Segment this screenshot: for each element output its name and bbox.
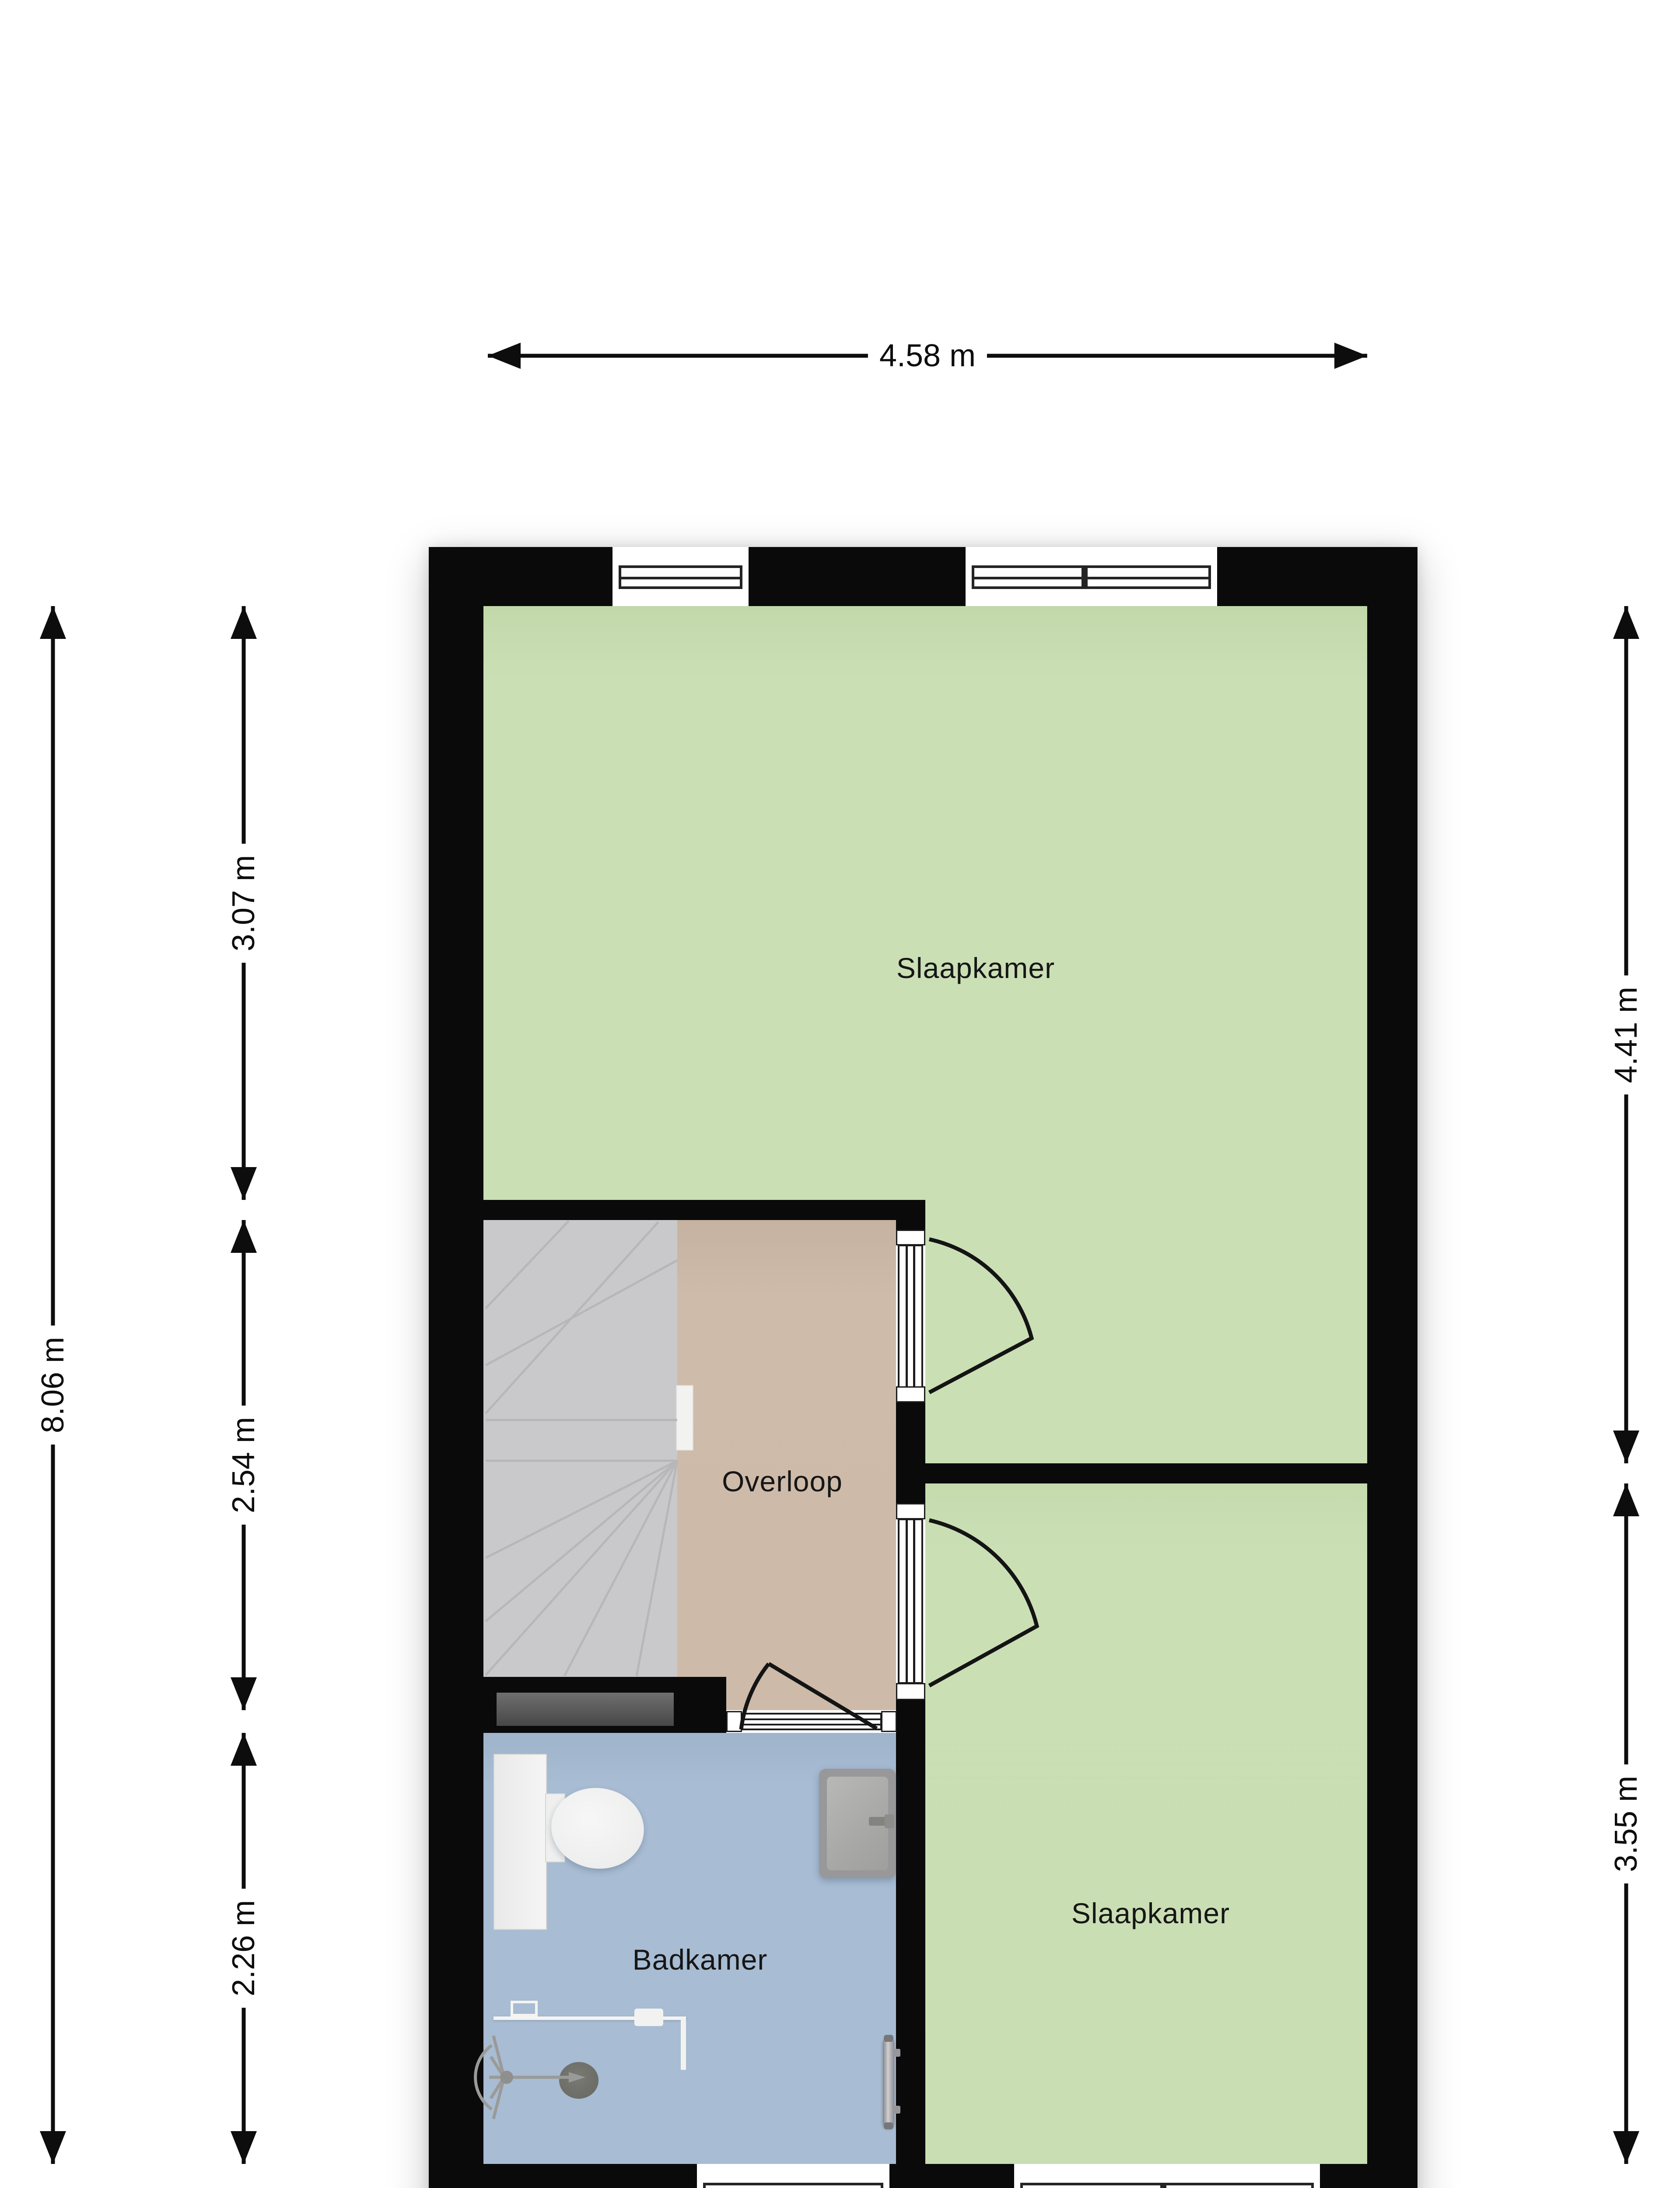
room-bedroom-bottom [925,1483,1367,2164]
door-leaf-bedroom-top [898,1245,923,1388]
window-frame [972,565,1211,589]
window-frame [619,565,742,589]
room-label-landing: Overloop [722,1465,843,1498]
dimension-left-total: 8.06 m [32,1325,73,1445]
radiator-cap [884,2122,893,2129]
room-bedroom-top [483,606,1367,1200]
wall-bedrooms-divider [925,1463,1367,1483]
door-jamb [881,1711,897,1732]
radiator-bracket [893,2049,900,2057]
dimension-left-2: 2.54 m [223,1406,264,1525]
door-jamb [726,1711,742,1732]
door-jamb [896,1386,925,1403]
dimension-right-2: 3.55 m [1606,1764,1647,1883]
room-label-bedroom-top: Slaapkamer [896,951,1055,985]
door-jamb [896,1683,925,1700]
shower-rail-post [681,2018,686,2070]
radiator-bracket [893,2106,900,2114]
wall-landing-north [483,1200,925,1220]
door-leaf-bathroom [741,1713,882,1730]
door-jamb [896,1503,925,1519]
dimension-right-1: 4.41 m [1606,975,1647,1094]
dimension-left-3: 2.26 m [223,1889,264,2008]
room-label-bathroom: Badkamer [633,1943,768,1976]
bathtub-faucet-knob [885,1814,894,1828]
window-frame [1020,2183,1314,2188]
radiator-icon [883,2037,894,2128]
room-bedroom-top-extension [925,1200,1367,1463]
door-jamb [896,1230,925,1245]
room-label-bedroom-bottom: Slaapkamer [1071,1897,1230,1930]
shower-drain-icon [559,2062,598,2099]
understair-step-edge [497,1693,674,1726]
window-mullion [1160,2183,1166,2188]
window-frame [703,2183,883,2188]
staircase-area [483,1220,677,1677]
window-mullion [1081,565,1088,589]
shower-rail-slider [634,2009,663,2026]
dimension-left-1: 3.07 m [223,844,264,963]
stair-newel-post [676,1385,693,1451]
dimension-top: 4.58 m [868,335,987,376]
washbasin-icon [493,1754,547,1930]
shower-rail-bracket [511,2001,538,2016]
door-leaf-bedroom-bottom [898,1518,923,1684]
radiator-cap [884,2035,893,2042]
